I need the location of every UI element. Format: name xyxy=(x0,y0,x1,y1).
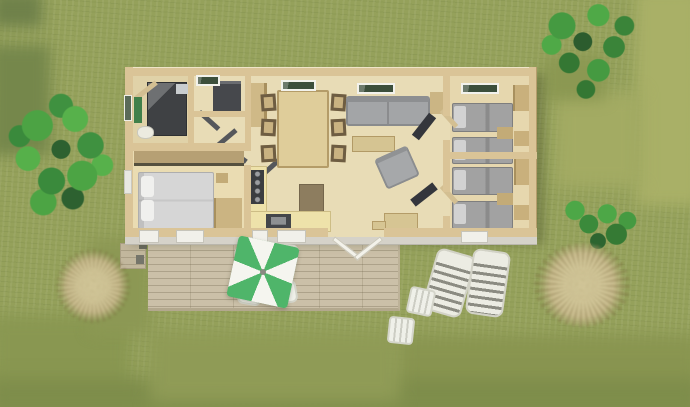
grass-patch-dark-corner xyxy=(0,0,42,27)
wall-top xyxy=(125,67,537,76)
window-left-master xyxy=(124,170,132,194)
kitchen-sink xyxy=(266,214,291,228)
window-bottom-1 xyxy=(139,230,159,243)
window-living xyxy=(357,83,395,94)
shower-glass-corner xyxy=(176,84,188,94)
deck-post-2 xyxy=(136,255,144,264)
master-bedside xyxy=(216,173,228,183)
master-pillow-1 xyxy=(141,176,154,197)
master-vanity xyxy=(214,198,242,228)
bedroom3-cabinet xyxy=(514,205,529,220)
window-bottom-5 xyxy=(461,231,488,243)
bath-mat-green xyxy=(134,97,142,123)
wall-bedrooms-divider xyxy=(450,152,537,159)
window-bedroom2 xyxy=(461,83,499,94)
window-left-bathroom xyxy=(124,95,132,121)
side-table-2 xyxy=(387,316,416,346)
tree-left xyxy=(2,86,120,218)
dining-chair-1 xyxy=(260,93,276,111)
kitchen-hob xyxy=(251,170,264,204)
dining-chair-6 xyxy=(331,145,347,163)
side-table-1 xyxy=(405,286,436,318)
tree-top-right xyxy=(536,0,640,100)
toilet xyxy=(137,126,154,139)
dining-chair-5 xyxy=(331,119,347,137)
pampas-grass-left-fronds xyxy=(56,249,130,323)
grass-patch-light-rightstrip xyxy=(636,0,690,205)
dining-chair-4 xyxy=(330,93,346,111)
wall-left xyxy=(125,67,133,237)
wall-master-right xyxy=(244,165,251,228)
wall-bedrooms-left-a xyxy=(443,74,450,116)
window-bottom-4 xyxy=(277,230,306,243)
wall-bedrooms-left-c xyxy=(443,216,450,228)
window-dining xyxy=(281,80,316,91)
bedroom2-cabinet xyxy=(514,131,529,146)
dining-chair-3 xyxy=(261,145,277,163)
parasol-pole xyxy=(260,269,266,275)
window-utility xyxy=(196,75,220,86)
wall-utility-bottom xyxy=(194,111,251,117)
bedroom2-bedside xyxy=(497,127,513,139)
grass-patch-light-right xyxy=(556,92,641,187)
dining-table xyxy=(277,90,329,168)
master-pillow-2 xyxy=(141,200,154,221)
master-wardrobe xyxy=(134,151,244,166)
wall-bathroom-right xyxy=(188,74,194,144)
wall-master-top xyxy=(125,143,251,151)
pampas-grass-right-fronds xyxy=(534,243,630,327)
dining-chair-2 xyxy=(261,119,277,137)
grass-patch-bottom-center xyxy=(150,332,400,402)
coffee-table xyxy=(352,136,395,152)
wall-bedrooms-left-b xyxy=(443,140,450,192)
bedroom3-bed-b-pillow xyxy=(454,204,466,224)
bedroom3-bedside xyxy=(497,193,513,205)
lodge-aerial-render xyxy=(0,0,690,407)
sofa xyxy=(346,96,430,126)
bedroom3-bed-a-pillow xyxy=(454,170,466,190)
window-bottom-2 xyxy=(176,230,204,243)
